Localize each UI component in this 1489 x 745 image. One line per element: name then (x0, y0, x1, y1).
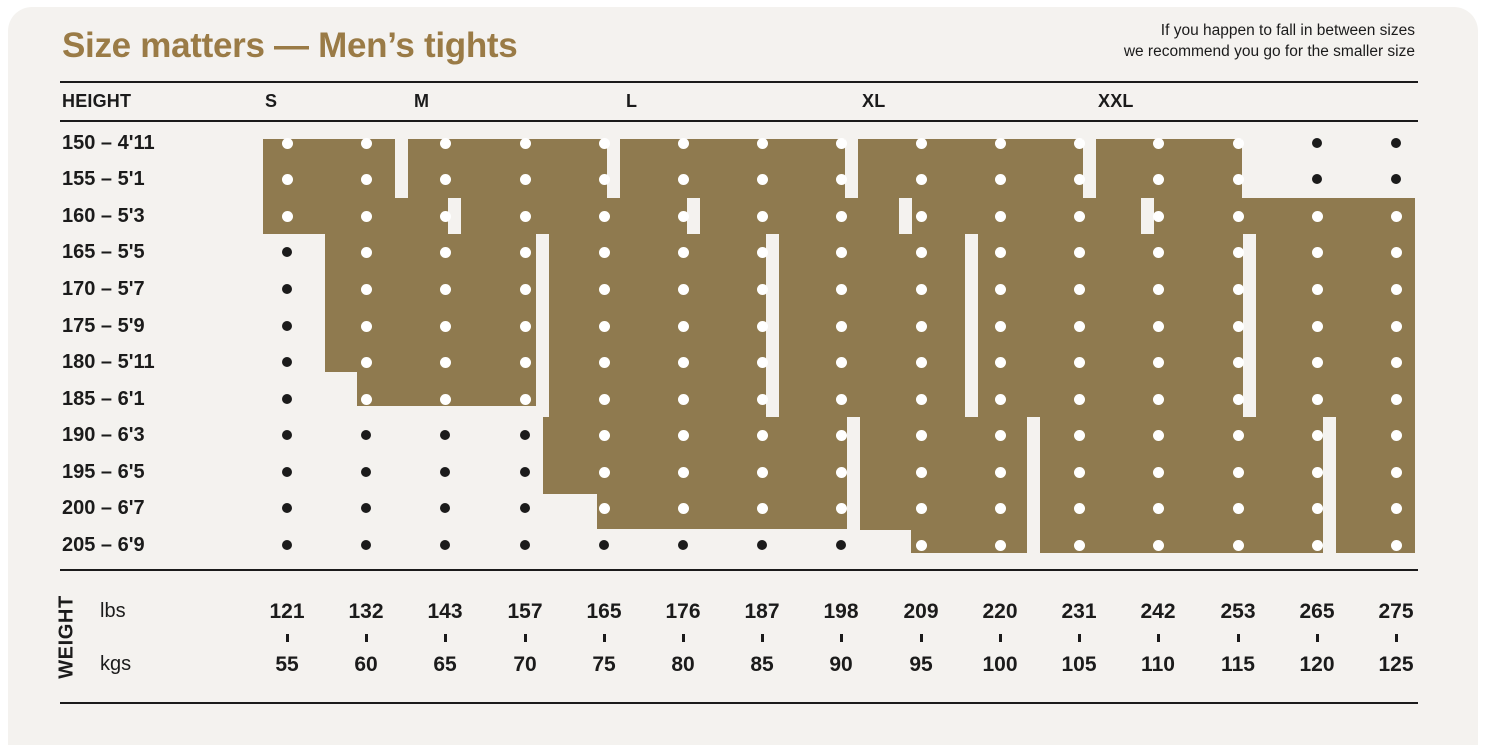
grid-dot-uncovered (440, 467, 450, 477)
grid-dot-covered (1153, 211, 1164, 222)
grid-dot-covered (599, 394, 610, 405)
grid-dot-uncovered (1312, 174, 1322, 184)
grid-dot-covered (836, 357, 847, 368)
grid-dot-uncovered (282, 247, 292, 257)
weight-lbs-value: 220 (982, 600, 1017, 624)
grid-dot-uncovered (440, 503, 450, 513)
weight-tick (1157, 634, 1160, 642)
grid-dot-covered (1153, 467, 1164, 478)
grid-dot-covered (757, 503, 768, 514)
weight-kgs-value: 80 (671, 653, 694, 677)
grid-dot-covered (678, 503, 689, 514)
grid-dot-uncovered (282, 394, 292, 404)
weight-kgs-value: 60 (354, 653, 377, 677)
grid-dot-covered (1391, 394, 1402, 405)
grid-dot-covered (1312, 503, 1323, 514)
grid-dot-covered (440, 321, 451, 332)
grid-dot-covered (1153, 503, 1164, 514)
grid-dot-covered (440, 138, 451, 149)
weight-lbs-value: 209 (903, 600, 938, 624)
weight-kgs-value: 100 (982, 653, 1017, 677)
weight-kgs-value: 90 (829, 653, 852, 677)
height-row-label: 200 – 6'7 (62, 496, 145, 520)
grid-dot-covered (995, 247, 1006, 258)
weight-tick (444, 634, 447, 642)
grid-dot-covered (995, 211, 1006, 222)
grid-dot-uncovered (361, 503, 371, 513)
size-region-m (408, 139, 607, 198)
note-line-2: we recommend you go for the smaller size (1124, 41, 1415, 62)
grid-dot-covered (678, 247, 689, 258)
weight-kgs-value: 75 (592, 653, 615, 677)
grid-dot-covered (1074, 430, 1085, 441)
grid-dot-covered (1153, 321, 1164, 332)
grid-dot-uncovered (361, 430, 371, 440)
grid-dot-uncovered (282, 284, 292, 294)
grid-dot-covered (916, 211, 927, 222)
height-row-label: 185 – 6'1 (62, 387, 145, 411)
grid-dot-covered (1312, 211, 1323, 222)
grid-dot-covered (1312, 394, 1323, 405)
column-header-size-m: M (414, 91, 429, 112)
grid-dot-covered (520, 211, 531, 222)
grid-dot-covered (282, 211, 293, 222)
weight-tick (1316, 634, 1319, 642)
grid-dot-covered (757, 321, 768, 332)
grid-dot-covered (440, 174, 451, 185)
grid-dot-uncovered (1312, 138, 1322, 148)
grid-dot-covered (1391, 321, 1402, 332)
grid-dot-covered (1312, 321, 1323, 332)
grid-dot-covered (1074, 174, 1085, 185)
weight-tick (286, 634, 289, 642)
grid-dot-covered (836, 430, 847, 441)
grid-dot-covered (1233, 503, 1244, 514)
grid-dot-covered (678, 138, 689, 149)
height-row-label: 190 – 6'3 (62, 423, 145, 447)
grid-dot-covered (440, 211, 451, 222)
grid-dot-covered (599, 138, 610, 149)
grid-dot-covered (995, 467, 1006, 478)
grid-dot-covered (1233, 430, 1244, 441)
grid-dot-uncovered (520, 467, 530, 477)
grid-dot-covered (1391, 247, 1402, 258)
weight-kgs-value: 95 (909, 653, 932, 677)
grid-dot-covered (757, 174, 768, 185)
weight-tick (524, 634, 527, 642)
grid-dot-covered (1074, 467, 1085, 478)
grid-dot-covered (916, 321, 927, 332)
grid-dot-covered (836, 247, 847, 258)
grid-dot-covered (836, 503, 847, 514)
grid-dot-covered (599, 321, 610, 332)
grid-dot-uncovered (282, 357, 292, 367)
grid-dot-covered (836, 211, 847, 222)
size-region-s (263, 139, 395, 198)
weight-kgs-value: 85 (750, 653, 773, 677)
weight-lbs-value: 121 (269, 600, 304, 624)
grid-dot-covered (1391, 284, 1402, 295)
grid-dot-covered (995, 430, 1006, 441)
size-region-l (911, 530, 1027, 553)
weight-kgs-value: 70 (513, 653, 536, 677)
column-header-size-xxl: XXL (1098, 91, 1134, 112)
grid-dot-uncovered (757, 540, 767, 550)
grid-dot-covered (678, 467, 689, 478)
weight-lbs-value: 265 (1299, 600, 1334, 624)
grid-dot-covered (1233, 247, 1244, 258)
grid-dot-covered (520, 357, 531, 368)
weight-kgs-value: 65 (433, 653, 456, 677)
unit-label-lbs: lbs (100, 600, 126, 623)
grid-dot-covered (599, 174, 610, 185)
grid-dot-covered (282, 174, 293, 185)
grid-dot-covered (1153, 540, 1164, 551)
grid-dot-uncovered (599, 540, 609, 550)
grid-dot-covered (995, 394, 1006, 405)
size-region-m (543, 417, 847, 494)
weight-tick (603, 634, 606, 642)
grid-dot-covered (995, 540, 1006, 551)
weight-lbs-value: 132 (348, 600, 383, 624)
weight-lbs-value: 253 (1220, 600, 1255, 624)
grid-dot-covered (1153, 430, 1164, 441)
grid-dot-covered (995, 174, 1006, 185)
size-region-m (461, 198, 687, 234)
grid-dot-covered (520, 247, 531, 258)
size-region-xxl (1096, 139, 1242, 198)
size-region-l (779, 234, 965, 417)
grid-dot-covered (440, 247, 451, 258)
grid-dot-covered (520, 321, 531, 332)
weight-tick (840, 634, 843, 642)
grid-dot-uncovered (520, 503, 530, 513)
grid-dot-covered (440, 284, 451, 295)
height-row-label: 150 – 4'11 (62, 131, 155, 155)
weight-kgs-value: 105 (1061, 653, 1096, 677)
weight-lbs-value: 157 (507, 600, 542, 624)
grid-dot-covered (282, 138, 293, 149)
weight-axis-label: WEIGHT (56, 595, 79, 679)
grid-dot-covered (995, 138, 1006, 149)
grid-dot-covered (678, 357, 689, 368)
grid-dot-covered (757, 211, 768, 222)
grid-dot-covered (1153, 138, 1164, 149)
grid-dot-covered (1233, 138, 1244, 149)
size-region-xl (858, 139, 1083, 198)
size-region-s (325, 234, 536, 372)
grid-dot-uncovered (282, 540, 292, 550)
grid-dot-covered (916, 430, 927, 441)
grid-dot-covered (1391, 211, 1402, 222)
grid-dot-covered (1312, 284, 1323, 295)
grid-dot-covered (678, 321, 689, 332)
grid-dot-covered (1233, 284, 1244, 295)
weight-kgs-value: 55 (275, 653, 298, 677)
weight-tick (761, 634, 764, 642)
grid-dot-covered (1153, 174, 1164, 185)
weight-tick (1078, 634, 1081, 642)
divider-above-weight (60, 569, 1418, 571)
grid-dot-covered (1074, 540, 1085, 551)
grid-dot-covered (1153, 394, 1164, 405)
grid-dot-covered (836, 138, 847, 149)
grid-dot-covered (1312, 540, 1323, 551)
grid-dot-covered (1233, 357, 1244, 368)
grid-dot-covered (599, 284, 610, 295)
weight-lbs-value: 187 (744, 600, 779, 624)
size-region-xxl (1336, 417, 1415, 553)
grid-dot-covered (520, 284, 531, 295)
grid-dot-covered (599, 357, 610, 368)
divider-below-weight (60, 702, 1418, 704)
grid-dot-covered (916, 503, 927, 514)
grid-dot-covered (678, 284, 689, 295)
size-region-m (597, 494, 847, 529)
grid-dot-uncovered (282, 321, 292, 331)
height-row-label: 170 – 5'7 (62, 277, 145, 301)
grid-dot-uncovered (836, 540, 846, 550)
grid-dot-covered (361, 211, 372, 222)
size-region-xl (978, 234, 1243, 417)
weight-tick (999, 634, 1002, 642)
column-header-size-s: S (265, 91, 277, 112)
grid-dot-covered (1074, 394, 1085, 405)
weight-kgs-value: 125 (1378, 653, 1413, 677)
grid-dot-covered (361, 321, 372, 332)
weight-lbs-value: 143 (427, 600, 462, 624)
grid-dot-covered (1391, 503, 1402, 514)
grid-dot-uncovered (440, 430, 450, 440)
grid-dot-uncovered (520, 430, 530, 440)
grid-dot-covered (520, 394, 531, 405)
grid-dot-uncovered (282, 503, 292, 513)
grid-dot-covered (361, 284, 372, 295)
grid-dot-covered (520, 174, 531, 185)
grid-dot-covered (599, 503, 610, 514)
grid-dot-covered (599, 467, 610, 478)
grid-dot-uncovered (678, 540, 688, 550)
grid-dot-covered (1153, 357, 1164, 368)
grid-dot-covered (836, 284, 847, 295)
height-row-label: 175 – 5'9 (62, 314, 145, 338)
grid-dot-covered (916, 357, 927, 368)
divider-under-title (60, 81, 1418, 83)
size-region-m (549, 234, 766, 417)
grid-dot-covered (1074, 138, 1085, 149)
grid-dot-covered (836, 394, 847, 405)
grid-dot-uncovered (361, 467, 371, 477)
grid-dot-covered (678, 394, 689, 405)
grid-dot-covered (757, 394, 768, 405)
grid-dot-covered (995, 357, 1006, 368)
grid-dot-covered (599, 430, 610, 441)
grid-dot-covered (599, 247, 610, 258)
grid-dot-covered (757, 357, 768, 368)
grid-dot-covered (916, 247, 927, 258)
height-row-label: 180 – 5'11 (62, 350, 155, 374)
grid-dot-covered (916, 284, 927, 295)
grid-dot-covered (1391, 540, 1402, 551)
grid-dot-covered (440, 357, 451, 368)
height-row-label: 165 – 5'5 (62, 240, 145, 264)
height-row-label: 155 – 5'1 (62, 167, 145, 191)
weight-tick (682, 634, 685, 642)
grid-dot-covered (757, 430, 768, 441)
weight-lbs-value: 176 (665, 600, 700, 624)
height-row-label: 195 – 6'5 (62, 460, 145, 484)
weight-lbs-value: 242 (1140, 600, 1175, 624)
grid-dot-covered (1312, 247, 1323, 258)
height-row-label: 205 – 6'9 (62, 533, 145, 557)
column-header-height: HEIGHT (62, 91, 131, 112)
grid-dot-covered (1233, 394, 1244, 405)
grid-dot-uncovered (440, 540, 450, 550)
grid-dot-covered (361, 247, 372, 258)
unit-label-kgs: kgs (100, 653, 131, 676)
grid-dot-covered (361, 138, 372, 149)
grid-dot-covered (1153, 284, 1164, 295)
weight-tick (1237, 634, 1240, 642)
grid-dot-covered (361, 174, 372, 185)
divider-under-header (60, 120, 1418, 122)
grid-dot-covered (995, 284, 1006, 295)
grid-dot-covered (757, 138, 768, 149)
weight-tick (1395, 634, 1398, 642)
grid-dot-covered (520, 138, 531, 149)
grid-dot-covered (995, 321, 1006, 332)
grid-dot-covered (361, 394, 372, 405)
grid-dot-covered (678, 211, 689, 222)
grid-dot-covered (1233, 321, 1244, 332)
grid-dot-covered (678, 430, 689, 441)
grid-dot-uncovered (282, 430, 292, 440)
weight-kgs-value: 120 (1299, 653, 1334, 677)
grid-dot-covered (599, 211, 610, 222)
weight-lbs-value: 198 (823, 600, 858, 624)
grid-dot-covered (995, 503, 1006, 514)
weight-kgs-value: 115 (1221, 653, 1255, 677)
grid-dot-uncovered (1391, 138, 1401, 148)
grid-dot-covered (1312, 430, 1323, 441)
grid-dot-covered (1074, 321, 1085, 332)
size-region-l (700, 198, 899, 234)
weight-tick (365, 634, 368, 642)
page-title: Size matters — Men’s tights (62, 26, 517, 66)
grid-dot-covered (757, 247, 768, 258)
grid-dot-covered (678, 174, 689, 185)
grid-dot-covered (1391, 357, 1402, 368)
grid-dot-covered (916, 138, 927, 149)
grid-dot-covered (1074, 211, 1085, 222)
grid-dot-covered (1074, 284, 1085, 295)
column-header-size-l: L (626, 91, 637, 112)
grid-dot-covered (1391, 430, 1402, 441)
weight-lbs-value: 231 (1061, 600, 1096, 624)
grid-dot-covered (836, 174, 847, 185)
size-region-xl (912, 198, 1141, 234)
grid-dot-covered (1074, 247, 1085, 258)
grid-dot-uncovered (520, 540, 530, 550)
size-chart-page: Size matters — Men’s tights If you happe… (0, 0, 1489, 745)
grid-dot-covered (1312, 467, 1323, 478)
column-header-size-xl: XL (862, 91, 885, 112)
grid-dot-covered (836, 467, 847, 478)
grid-dot-covered (757, 467, 768, 478)
grid-dot-covered (1153, 247, 1164, 258)
grid-dot-covered (1233, 211, 1244, 222)
size-region-xxl (1154, 198, 1415, 234)
grid-dot-covered (1391, 467, 1402, 478)
grid-dot-covered (1074, 503, 1085, 514)
grid-dot-covered (1233, 467, 1244, 478)
note-line-1: If you happen to fall in between sizes (1124, 20, 1415, 41)
grid-dot-uncovered (282, 467, 292, 477)
grid-dot-covered (757, 284, 768, 295)
grid-dot-covered (1074, 357, 1085, 368)
grid-dot-uncovered (361, 540, 371, 550)
height-row-label: 160 – 5'3 (62, 204, 145, 228)
weight-kgs-value: 110 (1141, 653, 1175, 677)
grid-dot-uncovered (1391, 174, 1401, 184)
weight-lbs-value: 165 (586, 600, 621, 624)
weight-tick (920, 634, 923, 642)
grid-dot-covered (440, 394, 451, 405)
between-sizes-note: If you happen to fall in between sizes w… (1124, 20, 1415, 62)
grid-dot-covered (916, 467, 927, 478)
grid-dot-covered (916, 394, 927, 405)
grid-dot-covered (1312, 357, 1323, 368)
grid-dot-covered (916, 174, 927, 185)
size-region-l (620, 139, 845, 198)
grid-dot-covered (1233, 174, 1244, 185)
grid-dot-covered (361, 357, 372, 368)
weight-lbs-value: 275 (1378, 600, 1413, 624)
grid-dot-covered (916, 540, 927, 551)
grid-dot-covered (836, 321, 847, 332)
grid-dot-covered (1233, 540, 1244, 551)
